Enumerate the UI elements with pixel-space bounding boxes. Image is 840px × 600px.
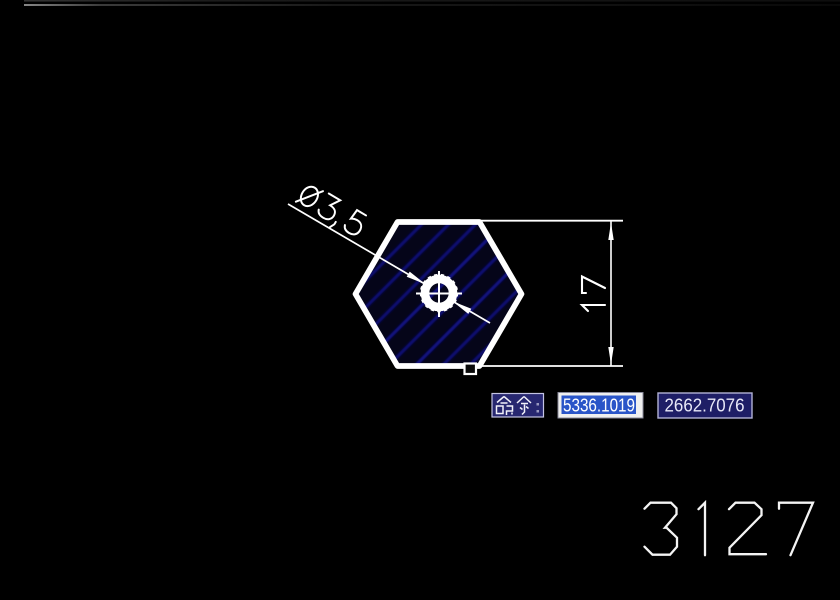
svg-text:2662.7076: 2662.7076 xyxy=(665,395,745,416)
svg-text:5336.1019: 5336.1019 xyxy=(563,395,635,416)
